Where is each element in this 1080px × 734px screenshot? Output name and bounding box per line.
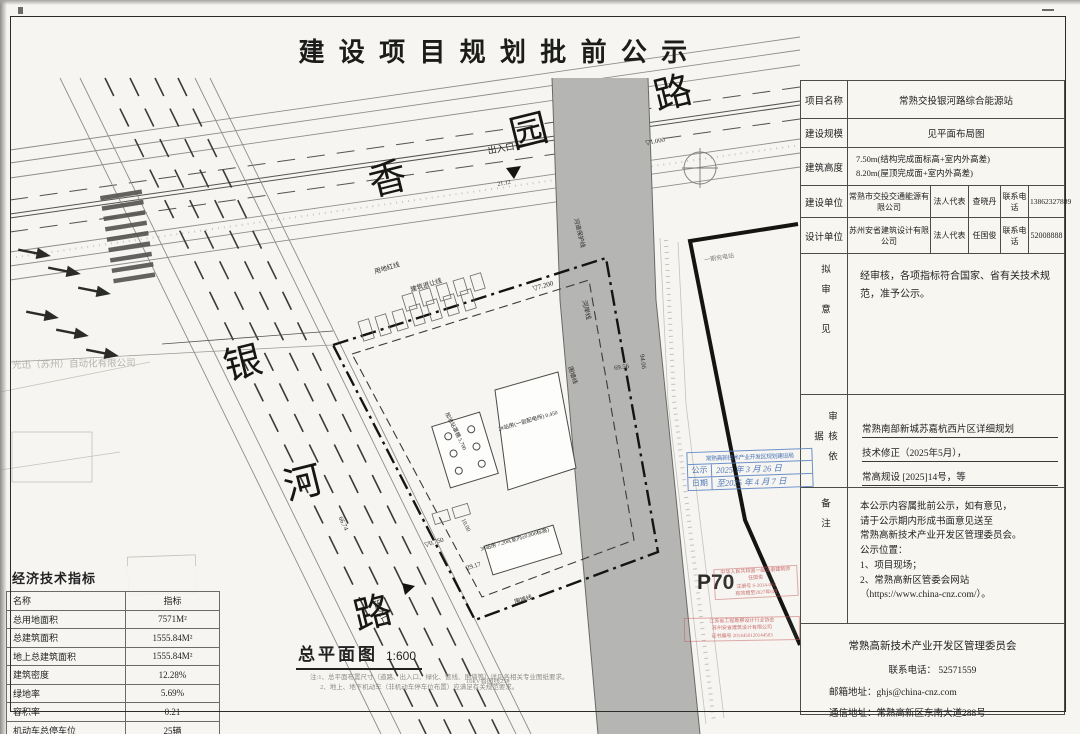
publicity-date-stamp: 常熟高新技术产业开发区规划建设局 公示 2025 年 3 月 26 日 日期 至… [686,448,813,491]
table-row: 建筑高度 7.50m(结构完成面标高+室内外高差) 8.20m(屋顶完成面+室内… [801,147,1064,185]
econ-name: 绿地率 [7,685,125,703]
econ-row: 绿地率5.69% [7,685,219,704]
econ-row: 地上总建筑面积1555.84M² [7,648,219,667]
basis-line: 常高规设 [2025]14号，等 [862,469,1058,486]
footer-email: 邮箱地址：ghjs@china-cnz.com [807,684,1058,698]
project-name: 常熟交投银河路综合能源站 [848,81,1064,118]
scanned-planning-notice: 香 园 路 银 河 路 出入口 21.12 出入口 用地红线 建筑退让线 河道保… [0,0,1080,734]
econ-name: 建筑密度 [7,666,125,684]
economic-indicators-table: 经济技术指标 名称 指标 总用地面积7571M² 总建筑面积1555.84M² … [6,566,220,734]
table-row: 设计单位 苏州安省建筑设计有限公司 法人代表 任国俊 联系电话 52008888 [801,217,1064,253]
row-label: 项目名称 [801,81,848,118]
econ-row: 容积率0.21 [7,703,219,722]
stamp-row-label: 公示 [688,464,712,477]
remark-line: 常熟高新技术产业开发区管理委员会。 [860,529,1056,544]
rep-label: 法人代表 [931,186,969,217]
scan-artifact [18,7,23,14]
architect-registration-stamp: 中华人民共和国一级注册建筑师 任国俊 注册号 S-2014-063 有效期至20… [713,565,799,600]
stamp-row-label: 日期 [688,477,712,490]
row-label: 建筑高度 [801,148,848,185]
econ-value: 1555.84M² [125,629,219,647]
remark-line: 1、项目现场； [860,559,1056,574]
econ-name: 机动车总停车位 [7,722,125,734]
row-label: 备注 [801,488,848,623]
row-label: 设计单位 [801,218,848,253]
well-symbol [682,148,718,188]
project-info-table: 项目名称 常熟交投银河路综合能源站 建设规模 见平面布局图 建筑高度 7.50m… [800,80,1065,715]
builder-name: 常熟市交投交通能源有限公司 [848,186,931,217]
designer-name: 苏州安省建筑设计有限公司 [848,218,931,253]
plan-scale: 1:600 [386,649,416,663]
econ-col-value: 指标 [125,592,219,610]
table-row: 审核依据 常熟南部新城苏嘉杭西片区详细规划 技术修正（2025年5月）， 常高规… [801,394,1064,487]
rep-label: 法人代表 [931,218,969,253]
econ-value: 7571M² [125,611,219,629]
entrance-arrow-bottom [402,583,415,595]
stamp-line: 证书编号 2014450120144503 [685,632,799,641]
plan-note-line: 注:1、总平面布置尺寸（道路、出入口、绿化、管线、围墙等）详见各相关专业图纸要求… [310,673,569,683]
table-row: 建设规模 见平面布局图 [801,118,1064,147]
builder-tel: 13862327889 [1029,186,1072,217]
footer-address: 通信地址：常熟高新区东南大道288号 [807,705,1058,719]
station-building-3 [484,525,562,575]
remark-line: 本公示内容属批前公示，如有意见， [860,500,1056,515]
footer-org: 常熟高新技术产业开发区管理委员会 [807,638,1058,653]
econ-name: 总用地面积 [7,611,125,629]
row-label: 建设单位 [801,186,848,217]
plan-notes: 注:1、总平面布置尺寸（道路、出入口、绿化、管线、围墙等）详见各相关专业图纸要求… [310,673,569,693]
plan-caption-text: 总平面图 [298,645,378,664]
designer-tel: 52008888 [1029,218,1064,253]
scan-edge-shadow [0,0,7,734]
econ-value: 1555.84M² [125,648,219,666]
basis-line: 技术修正（2025年5月）， [862,445,1058,462]
basis-line: 常熟南部新城苏嘉杭西片区详细规划 [862,421,1058,438]
econ-row: 总用地面积7571M² [7,611,219,630]
table-row: 常熟高新技术产业开发区管理委员会 联系电话： 52571559 邮箱地址：ghj… [801,623,1064,714]
scale-value: 见平面布局图 [848,119,1064,147]
remark-line: （https://www.china-cnz.com/）。 [860,588,1056,603]
econ-value: 12.28% [125,666,219,684]
table-row: 项目名称 常熟交投银河路综合能源站 [801,81,1064,118]
econ-value: 25辆 [125,722,219,734]
designer-rep: 任国俊 [969,218,1001,253]
table-row: 建设单位 常熟市交投交通能源有限公司 法人代表 查晓丹 联系电话 1386232… [801,185,1064,217]
econ-value: 5.69% [125,685,219,703]
height-line-2: 8.20m(屋顶完成面+室内外高差) [856,167,973,181]
econ-name: 总建筑面积 [7,629,125,647]
table-row: 备注 本公示内容属批前公示，如有意见， 请于公示期内形成书面意见送至 常熟高新技… [801,487,1064,623]
econ-col-name: 名称 [7,592,125,610]
footer-tel: 联系电话： 52571559 [807,662,1058,676]
design-firm-stamp: 江苏省工程勘察设计行业协会 苏州安省建筑设计有限公司 证书编号 20144501… [684,616,800,642]
econ-row: 机动车总停车位25辆 [7,722,219,734]
table-row: 拟审意见 经审核，各项指标符合国家、省有关技术规范，准予公示。 [801,253,1064,394]
row-label: 拟审意见 [801,254,848,394]
row-label: 建设规模 [801,119,848,147]
entrance-arrow-top [506,166,521,179]
remark-line: 请于公示期内形成书面意见送至 [860,515,1056,530]
scan-edge-shadow [0,0,1080,5]
builder-rep: 查晓丹 [969,186,1001,217]
econ-value: 0.21 [125,703,219,721]
econ-name: 地上总建筑面积 [7,648,125,666]
remark-line: 2、常熟高新区管委会网站 [860,574,1056,589]
plan-caption: 总平面图1:600 [296,640,422,670]
river [552,78,700,734]
stamp-row-value: 至2025 年 4 月 7 日 [712,474,812,489]
econ-row: 建筑密度12.28% [7,666,219,685]
tel-label: 联系电话 [1001,186,1029,217]
econ-name: 容积率 [7,703,125,721]
canopy-building [432,412,499,488]
height-line-1: 7.50m(结构完成面标高+室内外高差) [856,153,990,167]
tel-label: 联系电话 [1001,218,1029,253]
remark-line: 公示位置： [860,544,1056,559]
econ-table-title: 经济技术指标 [6,566,220,591]
plan-note-line: 2、地上、地下机动车（非机动车停车位布置）应满足有关规范要求。 [310,683,569,693]
dimension-label: 94.06 [638,354,646,369]
scan-artifact [1042,9,1054,11]
page-title: 建设项目规划批前公示 [240,32,760,69]
econ-row: 总建筑面积1555.84M² [7,629,219,648]
opinion-text: 经审核，各项指标符合国家、省有关技术规范，准予公示。 [848,254,1064,394]
econ-header-row: 名称 指标 [7,592,219,611]
